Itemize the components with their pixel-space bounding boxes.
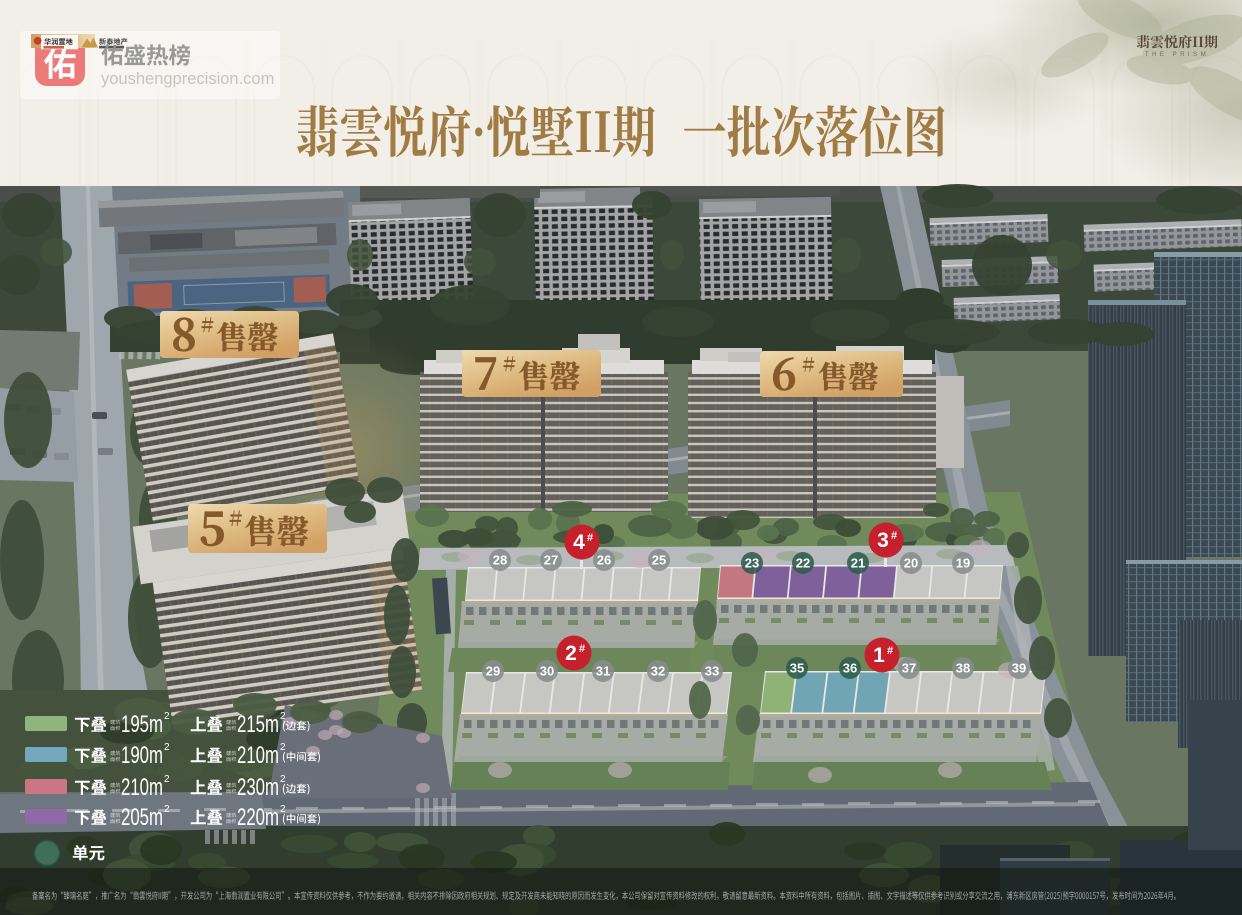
- svg-text:22: 22: [796, 556, 810, 571]
- svg-text:#: #: [579, 643, 585, 655]
- svg-text:215m: 215m: [237, 711, 279, 738]
- svg-text:2: 2: [164, 804, 170, 815]
- svg-text:25: 25: [652, 553, 666, 568]
- svg-text:27: 27: [544, 553, 558, 568]
- svg-text:2: 2: [280, 774, 286, 785]
- svg-text:38: 38: [956, 661, 970, 676]
- svg-text:2: 2: [280, 711, 286, 722]
- svg-text:210m: 210m: [121, 774, 163, 801]
- svg-text:#: #: [891, 530, 897, 542]
- svg-text:30: 30: [540, 664, 554, 679]
- svg-text:37: 37: [902, 661, 916, 676]
- svg-text:220m: 220m: [237, 804, 279, 831]
- svg-text:3: 3: [877, 529, 889, 552]
- svg-text:33: 33: [705, 664, 719, 679]
- svg-text:28: 28: [493, 553, 507, 568]
- svg-text:2: 2: [164, 774, 170, 785]
- svg-text:205m: 205m: [121, 804, 163, 831]
- svg-text:2: 2: [280, 804, 286, 815]
- svg-text:230m: 230m: [237, 774, 279, 801]
- svg-text:2: 2: [164, 742, 170, 753]
- svg-text:2: 2: [280, 742, 286, 753]
- svg-text:2: 2: [565, 642, 577, 665]
- svg-text:4: 4: [573, 531, 585, 554]
- svg-text:2: 2: [164, 711, 170, 722]
- svg-text:#: #: [587, 532, 593, 544]
- svg-text:THE PRISM: THE PRISM: [1145, 51, 1209, 58]
- svg-text:20: 20: [904, 556, 918, 571]
- svg-text:190m: 190m: [121, 742, 163, 769]
- svg-text:#: #: [887, 645, 893, 657]
- svg-text:21: 21: [851, 556, 865, 571]
- svg-text:youshengprecision.com: youshengprecision.com: [101, 70, 274, 88]
- svg-text:29: 29: [486, 664, 500, 679]
- svg-text:36: 36: [843, 661, 857, 676]
- svg-text:32: 32: [651, 664, 665, 679]
- svg-text:195m: 195m: [121, 711, 163, 738]
- svg-text:35: 35: [790, 661, 804, 676]
- svg-text:31: 31: [596, 664, 610, 679]
- svg-text:39: 39: [1012, 661, 1026, 676]
- svg-text:210m: 210m: [237, 742, 279, 769]
- svg-text:1: 1: [873, 644, 885, 667]
- svg-text:23: 23: [745, 556, 759, 571]
- svg-text:19: 19: [956, 556, 970, 571]
- svg-text:26: 26: [597, 553, 611, 568]
